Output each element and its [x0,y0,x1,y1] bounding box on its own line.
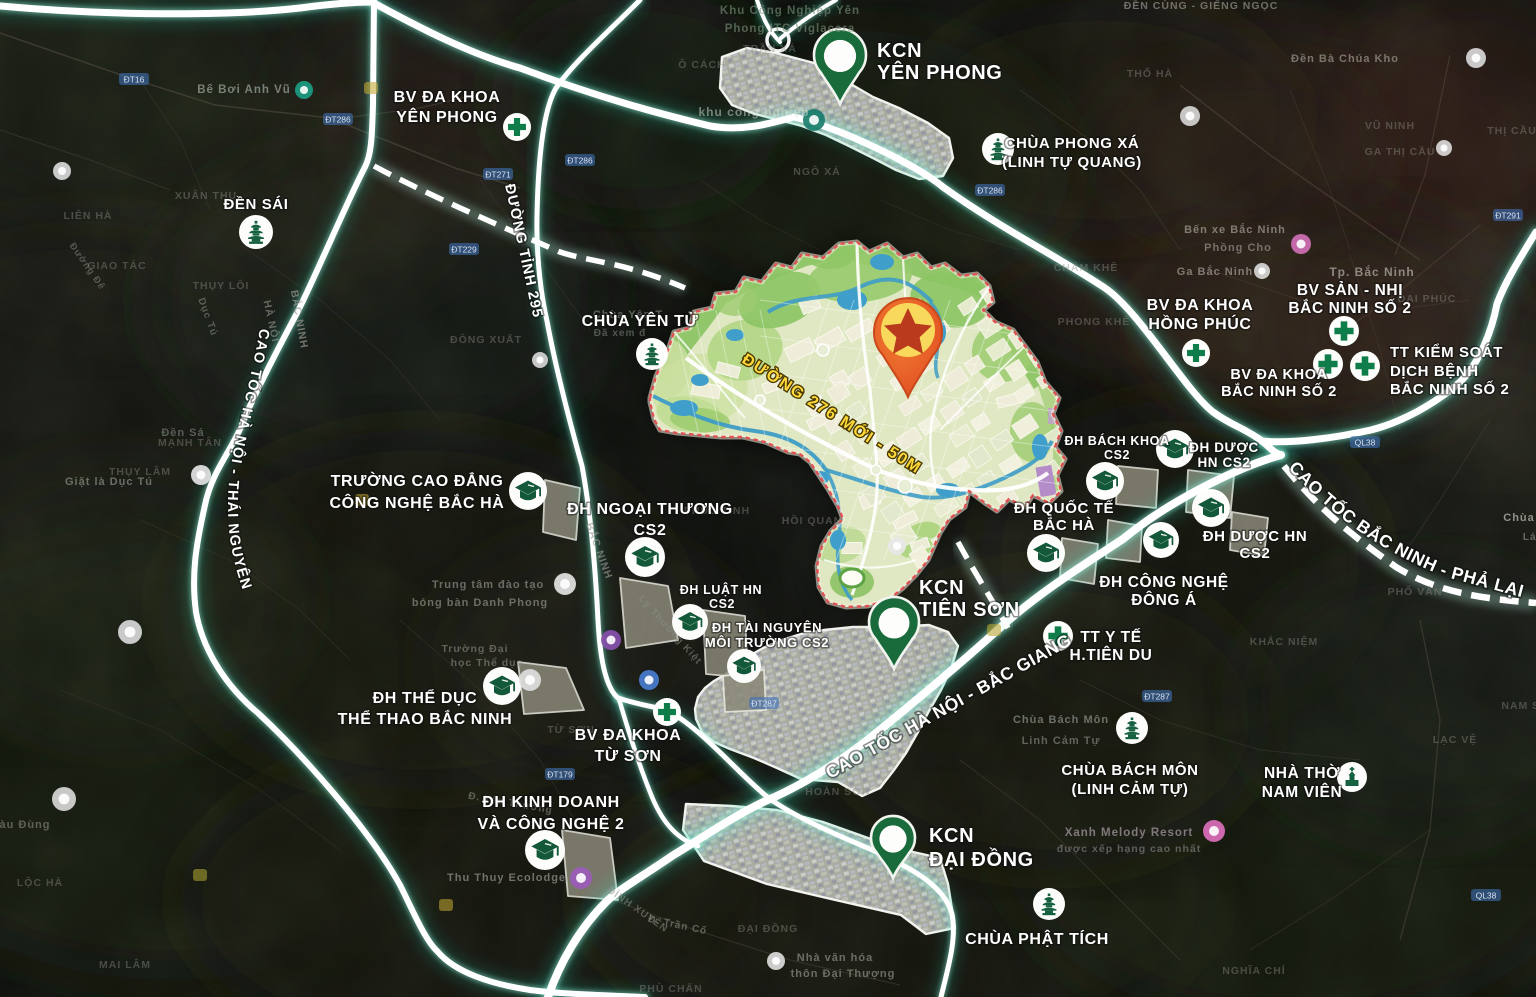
svg-text:Bến xe Bắc Ninh: Bến xe Bắc Ninh [1184,223,1286,236]
svg-text:Ô CÁCH: Ô CÁCH [678,58,725,71]
svg-text:KCN: KCN [919,577,964,599]
svg-text:Trung tâm đào tạo: Trung tâm đào tạo [432,579,544,591]
svg-text:Linh Cảm Tự: Linh Cảm Tự [1022,735,1101,747]
svg-text:DỊCH BỆNH: DỊCH BỆNH [1390,362,1479,380]
svg-text:ĐH BÁCH KHOA: ĐH BÁCH KHOA [1064,433,1169,448]
svg-text:BẮC NINH SỐ 2: BẮC NINH SỐ 2 [1221,382,1337,400]
svg-text:ĐT16: ĐT16 [124,75,145,85]
svg-text:ĐH KINH DOANH: ĐH KINH DOANH [482,794,620,811]
svg-text:ĐH LUẬT HN: ĐH LUẬT HN [680,582,762,597]
svg-text:GA THỊ CẦU: GA THỊ CẦU [1365,145,1436,158]
svg-text:KCN: KCN [929,825,974,847]
svg-text:TIÊN SƠN: TIÊN SƠN [919,597,1020,621]
svg-text:NAM VIÊN: NAM VIÊN [1262,783,1343,801]
svg-text:QL38: QL38 [1476,891,1497,901]
svg-text:CHÙA BÁCH MÔN: CHÙA BÁCH MÔN [1061,761,1198,779]
svg-text:ĐH THỂ DỤC: ĐH THỂ DỤC [373,688,478,707]
svg-text:ĐÔNG XUẤT: ĐÔNG XUẤT [450,333,522,346]
svg-text:VŨ NINH: VŨ NINH [1365,119,1415,132]
svg-text:BV ĐA KHOA: BV ĐA KHOA [1230,367,1327,383]
svg-text:ĐỀN SÁI: ĐỀN SÁI [223,196,288,213]
svg-text:QL38: QL38 [1355,438,1376,448]
svg-text:Đền Bà Chúa Kho: Đền Bà Chúa Kho [1291,53,1399,65]
svg-text:khu công nghiệp: khu công nghiệp [699,105,810,119]
svg-text:ĐẠI ĐỒNG: ĐẠI ĐỒNG [929,847,1034,871]
svg-text:Chùa: Chùa [1503,512,1535,524]
svg-text:TỪ SƠN: TỪ SƠN [595,746,662,765]
svg-text:ĐH DƯỢC: ĐH DƯỢC [1189,440,1259,455]
svg-text:ĐT287: ĐT287 [1144,692,1170,702]
svg-text:ĐÔNG Á: ĐÔNG Á [1131,591,1197,609]
svg-text:Khu Công Nghiệp Yên: Khu Công Nghiệp Yên [720,5,860,17]
svg-text:ĐT286: ĐT286 [977,186,1003,196]
svg-text:(LINH TỰ QUANG): (LINH TỰ QUANG) [1002,154,1142,171]
svg-text:Tp. Bắc Ninh: Tp. Bắc Ninh [1329,264,1414,279]
svg-text:BẮC NINH SỐ 2: BẮC NINH SỐ 2 [1390,380,1509,398]
svg-text:ĐT179: ĐT179 [547,770,573,780]
svg-text:BV ĐA KHOA: BV ĐA KHOA [575,727,682,744]
svg-text:ĐH QUỐC TẾ: ĐH QUỐC TẾ [1014,499,1114,517]
svg-text:được xếp hạng cao nhất: được xếp hạng cao nhất [1057,843,1201,855]
svg-text:PHỐ VÂN: PHỐ VÂN [1388,584,1443,598]
svg-text:CHÙA PHONG XÁ: CHÙA PHONG XÁ [1005,134,1140,152]
svg-text:HỒNG PHÚC: HỒNG PHÚC [1148,314,1251,333]
svg-text:CS2: CS2 [709,597,735,611]
svg-text:KHẮC NIỆM: KHẮC NIỆM [1250,635,1319,648]
svg-text:CHÁM KHÊ: CHÁM KHÊ [1054,261,1119,274]
svg-text:BẮC NINH SỐ 2: BẮC NINH SỐ 2 [1288,299,1411,317]
svg-text:YÊN PHONG: YÊN PHONG [877,60,1002,84]
svg-text:ĐT286: ĐT286 [325,115,351,125]
svg-text:HN CS2: HN CS2 [1197,455,1250,470]
svg-text:H.TIÊN DU: H.TIÊN DU [1070,646,1153,664]
svg-text:NGÔ XÁ: NGÔ XÁ [793,165,840,178]
svg-text:BV ĐA KHOA: BV ĐA KHOA [1147,297,1254,314]
svg-text:ĐH CÔNG NGHỆ: ĐH CÔNG NGHỆ [1099,573,1228,591]
svg-text:Phong ITC Viglacera: Phong ITC Viglacera [725,23,856,35]
svg-text:VÀ CÔNG NGHỆ 2: VÀ CÔNG NGHỆ 2 [477,814,624,833]
svg-text:CS2: CS2 [1104,448,1130,462]
svg-text:Ga Bắc Ninh: Ga Bắc Ninh [1177,265,1253,278]
svg-text:ĐT286: ĐT286 [567,156,593,166]
svg-text:thôn Đại Thượng: thôn Đại Thượng [791,968,896,980]
svg-text:HỒI QUAN: HỒI QUAN [782,514,843,527]
svg-text:CHÙA PHẬT TÍCH: CHÙA PHẬT TÍCH [965,929,1109,948]
svg-text:ĐH TÀI NGUYÊN: ĐH TÀI NGUYÊN [712,620,822,635]
svg-text:TRẦN XÁ: TRẦN XÁ [743,42,797,55]
svg-text:ĐT287: ĐT287 [751,699,777,709]
svg-text:TT KIỂM SOÁT: TT KIỂM SOÁT [1390,343,1503,361]
svg-text:BẮC HÀ: BẮC HÀ [1033,516,1095,534]
svg-text:PHONG KHÊ: PHONG KHÊ [1058,315,1131,328]
svg-text:PHÙ CHẨN: PHÙ CHẨN [639,982,702,995]
svg-text:Chùa Bách Môn: Chùa Bách Môn [1013,714,1109,726]
svg-text:ĐT229: ĐT229 [451,245,477,255]
svg-text:MAI LÂM: MAI LÂM [99,958,151,971]
svg-text:CÔNG NGHỆ BẮC HÀ: CÔNG NGHỆ BẮC HÀ [330,493,505,512]
svg-text:Thu Thuy Ecolodge: Thu Thuy Ecolodge [447,872,566,884]
svg-text:THỔ HÀ: THỔ HÀ [1127,67,1173,80]
svg-text:LẠC VỆ: LẠC VỆ [1433,733,1478,746]
svg-text:LỘC HÀ: LỘC HÀ [17,876,63,889]
svg-text:bóng bàn Danh Phong: bóng bàn Danh Phong [412,597,548,609]
svg-text:BV SẢN - NHỊ: BV SẢN - NHỊ [1297,282,1403,299]
svg-text:BV ĐA KHOA: BV ĐA KHOA [394,89,501,106]
svg-text:NHÀ THỜ: NHÀ THỜ [1264,764,1340,782]
svg-text:NAM SƠN: NAM SƠN [1501,700,1536,712]
svg-text:àu Đùng: àu Đùng [0,819,51,831]
svg-text:THỤY LÔI: THỤY LÔI [193,279,250,292]
svg-text:Đền Sá: Đền Sá [161,427,204,439]
svg-text:ĐH NGOẠI THƯƠNG: ĐH NGOẠI THƯƠNG [567,501,733,518]
svg-text:Xanh Melody Resort: Xanh Melody Resort [1065,827,1194,839]
svg-text:YÊN PHONG: YÊN PHONG [396,107,497,126]
svg-text:TRƯỜNG CAO ĐẲNG: TRƯỜNG CAO ĐẲNG [331,471,504,490]
svg-text:ĐẠI ĐỒNG: ĐẠI ĐỒNG [738,922,799,935]
svg-text:CS2: CS2 [634,522,667,539]
svg-text:TT Y TẾ: TT Y TẾ [1080,629,1141,646]
svg-text:MÔI TRƯỜNG CS2: MÔI TRƯỜNG CS2 [705,635,829,650]
svg-text:ĐỀN CÙNG - GIẾNG NGỌC: ĐỀN CÙNG - GIẾNG NGỌC [1124,0,1279,12]
svg-text:Lác: Lác [1523,532,1536,543]
svg-text:(LINH CẢM TỰ): (LINH CẢM TỰ) [1072,781,1189,798]
svg-text:ĐT291: ĐT291 [1495,211,1521,221]
svg-text:Trường Đại: Trường Đại [441,643,508,655]
svg-text:THỊ CẦU: THỊ CẦU [1487,124,1536,137]
svg-text:Giặt là Dục Tú: Giặt là Dục Tú [65,476,153,488]
svg-text:THỂ THAO BẮC NINH: THỂ THAO BẮC NINH [338,709,513,728]
svg-text:CS2: CS2 [1240,545,1271,562]
svg-text:HOÀN SƠN: HOÀN SƠN [805,785,870,798]
svg-text:KCN: KCN [877,40,922,62]
svg-text:CHÙA YÊN TỬ: CHÙA YÊN TỬ [582,311,699,330]
svg-text:Nhà văn hóa: Nhà văn hóa [797,952,873,964]
svg-text:Phồng Cho: Phồng Cho [1204,242,1272,254]
svg-text:LIÊN HÀ: LIÊN HÀ [64,209,113,222]
svg-text:Bể Bơi Anh Vũ: Bể Bơi Anh Vũ [197,84,291,96]
svg-text:ĐT271: ĐT271 [485,170,511,180]
svg-text:ĐH DƯỢC HN: ĐH DƯỢC HN [1203,528,1308,545]
svg-text:học Thể dục: học Thể dục [451,657,524,669]
svg-text:NGHĨA CHỈ: NGHĨA CHỈ [1222,964,1285,977]
